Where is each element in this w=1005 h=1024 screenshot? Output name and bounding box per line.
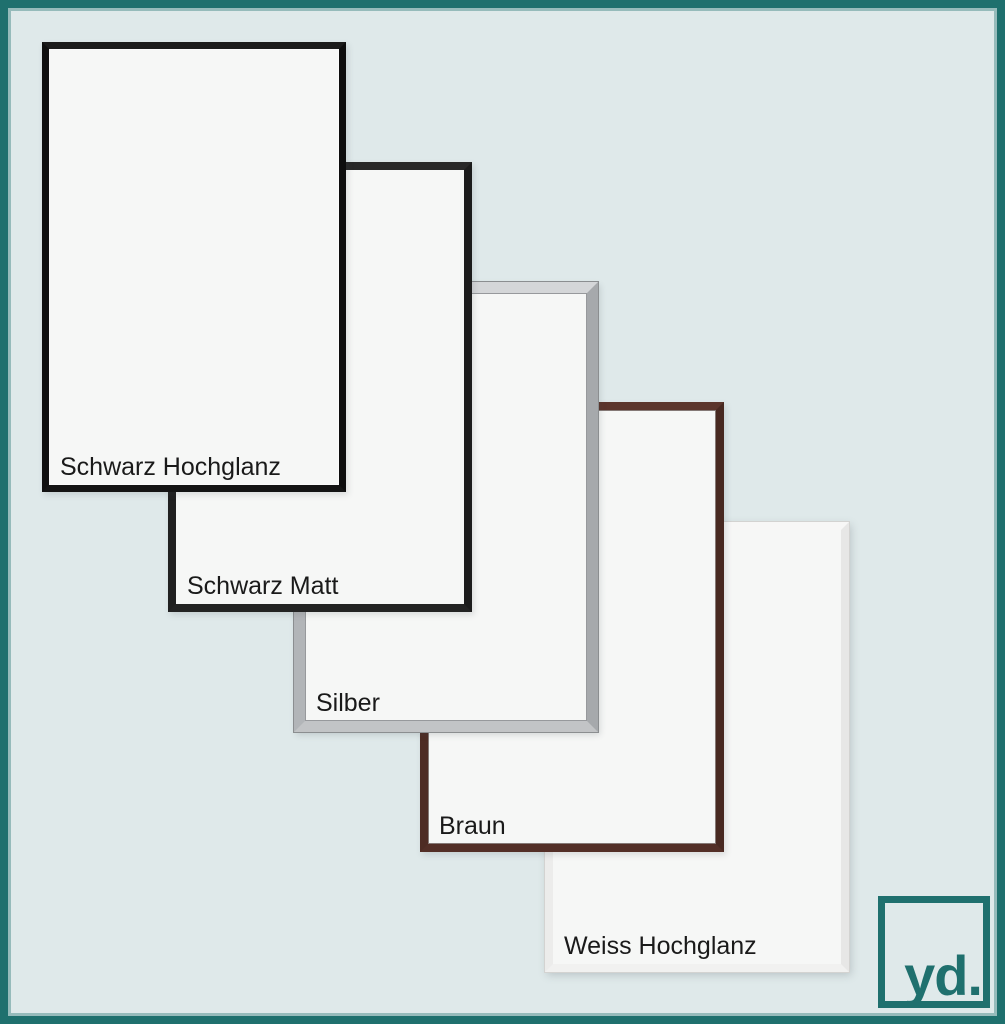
frame-label-weiss-hochglanz: Weiss Hochglanz (564, 931, 757, 961)
brand-logo-text: yd. (904, 948, 982, 1004)
frame-label-silber: Silber (316, 688, 380, 718)
frame-label-braun: Braun (439, 811, 506, 841)
product-image-canvas: Weiss Hochglanz Braun Silber Schwarz Mat… (0, 0, 1005, 1024)
frame-schwarz-hochglanz: Schwarz Hochglanz (42, 42, 346, 492)
frame-label-schwarz-hochglanz: Schwarz Hochglanz (60, 452, 281, 482)
brand-logo: yd. (878, 896, 990, 1008)
frame-label-schwarz-matt: Schwarz Matt (187, 571, 338, 601)
